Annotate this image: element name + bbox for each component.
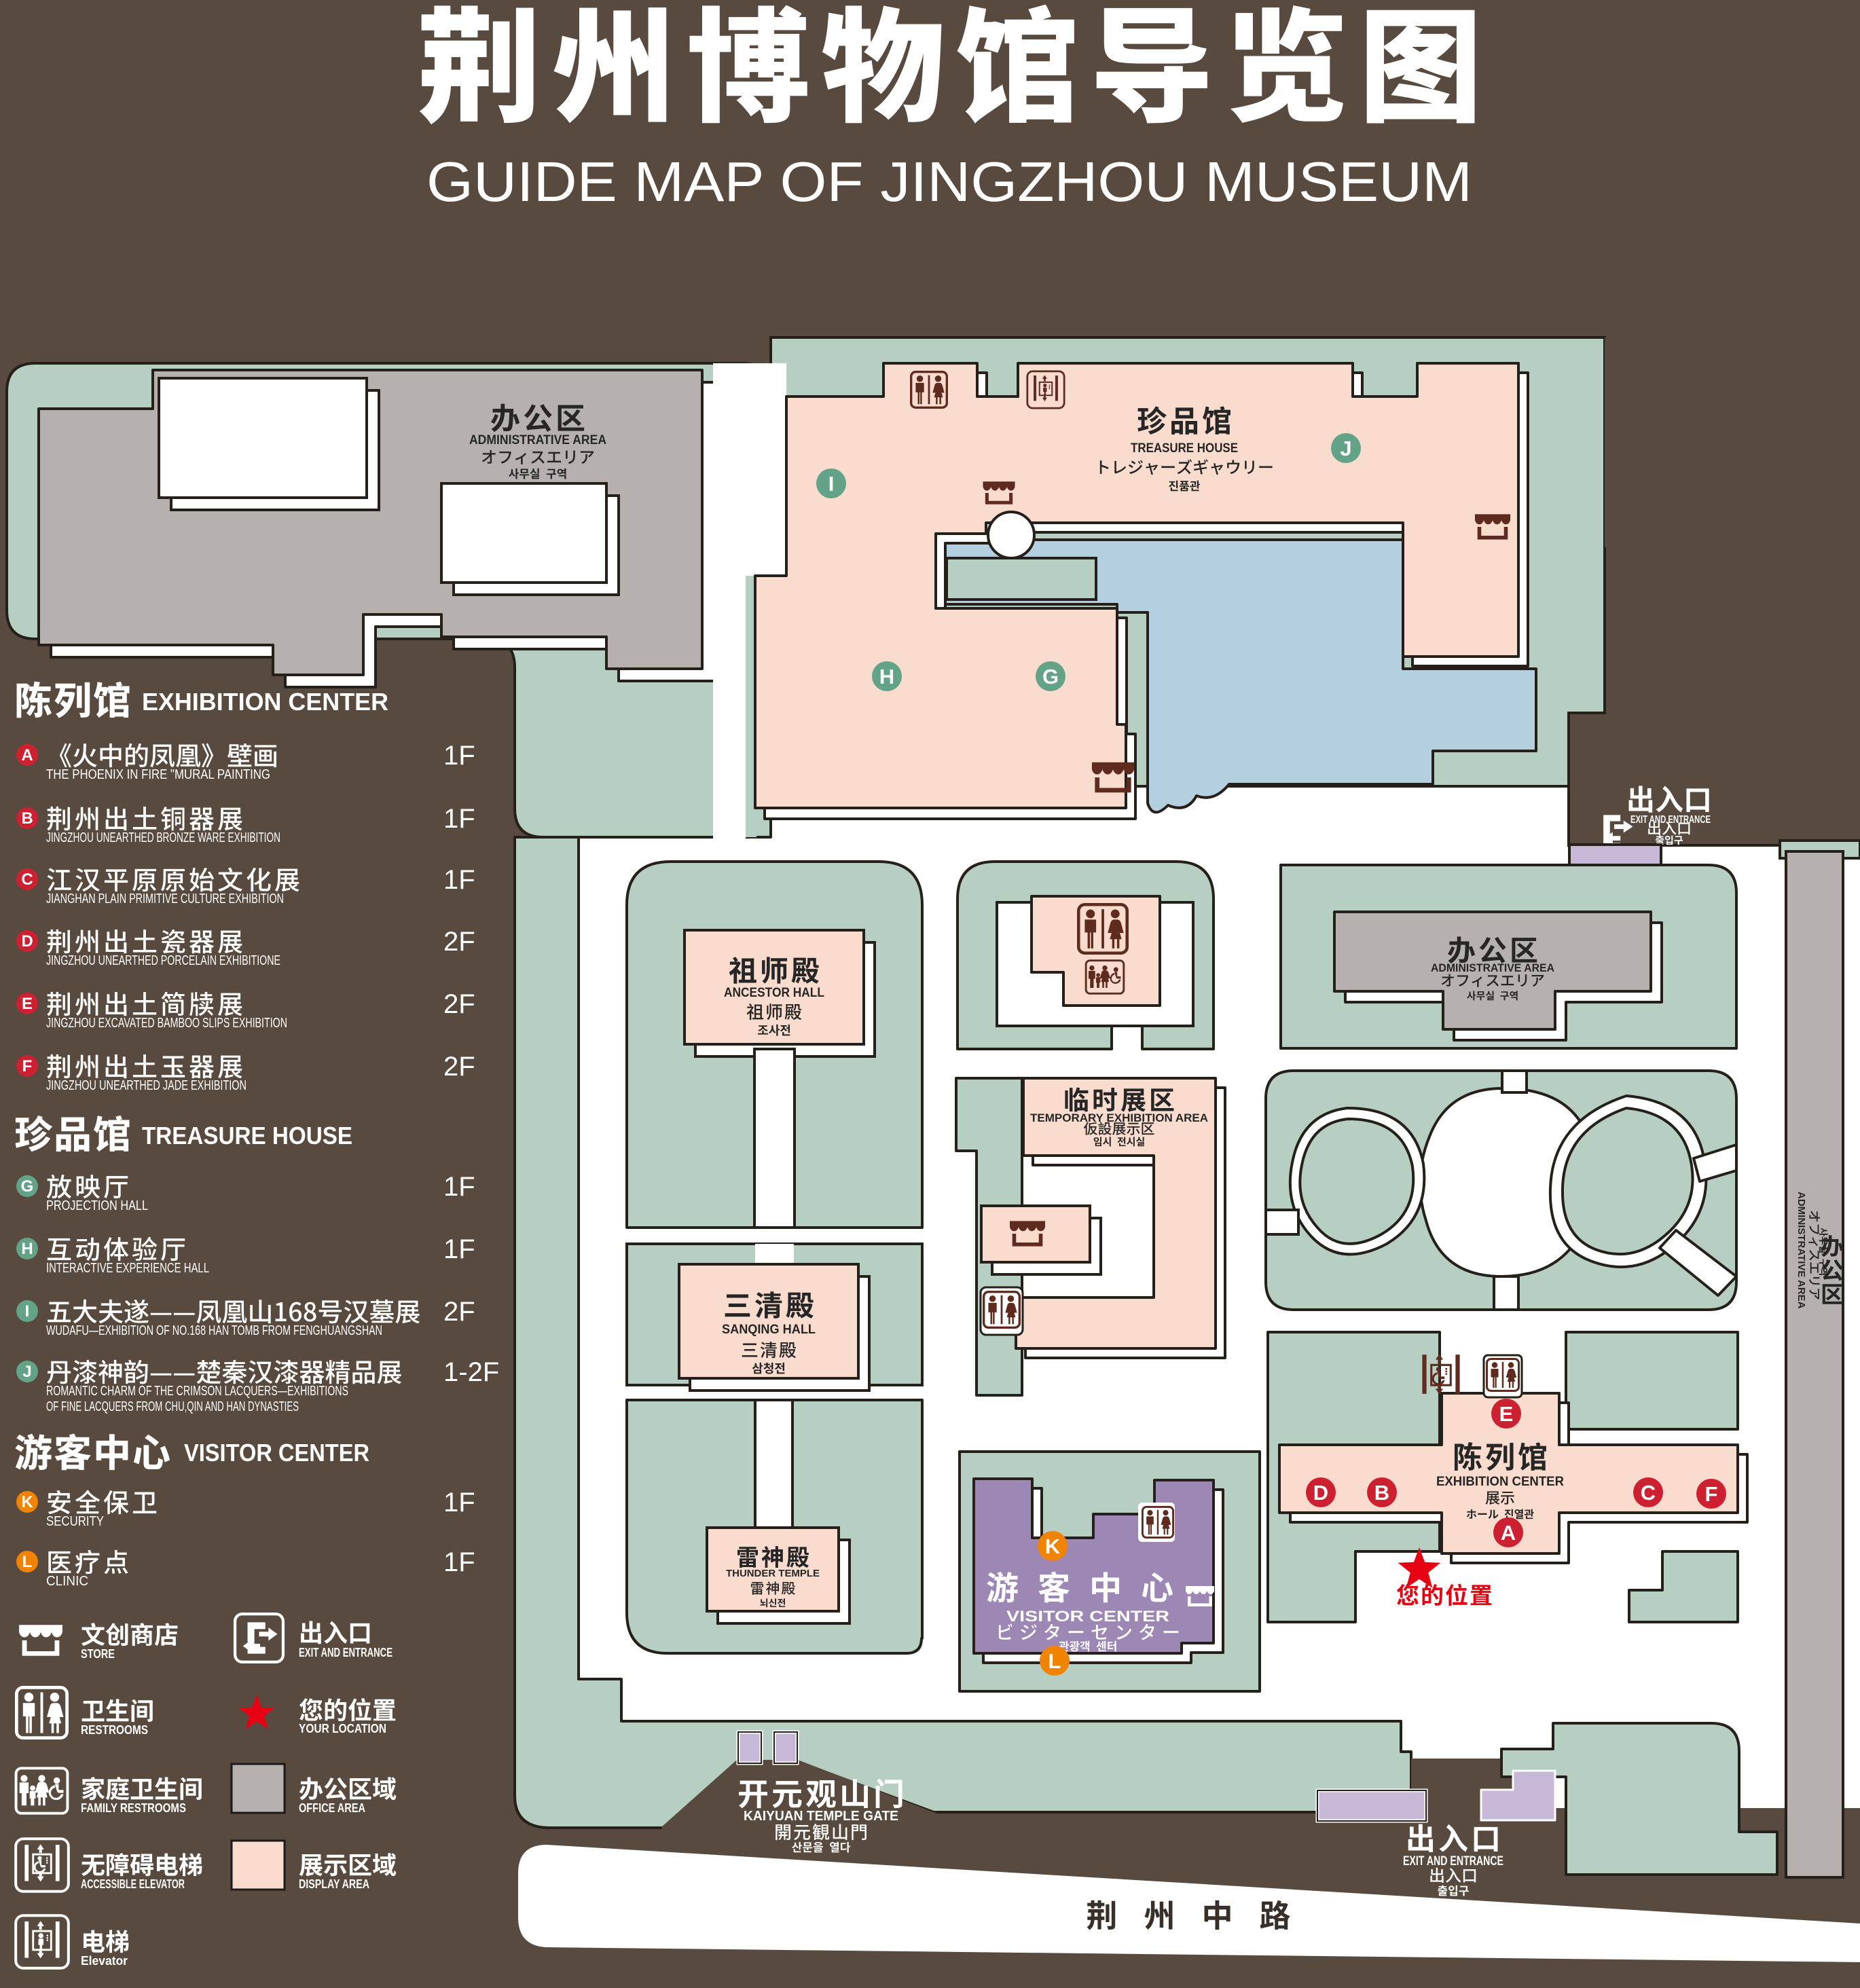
svg-text:A: A — [21, 746, 33, 765]
svg-text:C: C — [21, 870, 33, 889]
svg-text:ACCESSIBLE ELEVATOR: ACCESSIBLE ELEVATOR — [81, 1877, 185, 1891]
svg-text:ROMANTIC CHARM OF THE CRIMSON: ROMANTIC CHARM OF THE CRIMSON LACQUERS—E… — [46, 1384, 348, 1399]
svg-text:D: D — [1313, 1481, 1328, 1505]
svg-text:H: H — [879, 665, 894, 688]
svg-text:DISPLAY AREA: DISPLAY AREA — [299, 1877, 369, 1891]
svg-text:A: A — [1501, 1521, 1516, 1545]
svg-text:J: J — [1340, 437, 1351, 460]
svg-text:EXHIBITION CENTER: EXHIBITION CENTER — [1436, 1475, 1564, 1489]
svg-text:ADMINISTRATIVE AREA: ADMINISTRATIVE AREA — [469, 433, 606, 447]
svg-text:SANQING HALL: SANQING HALL — [722, 1323, 816, 1337]
svg-text:ADMINISTRATIVE AREA: ADMINISTRATIVE AREA — [1431, 961, 1554, 974]
svg-text:Elevator: Elevator — [81, 1954, 128, 1968]
svg-text:I: I — [828, 472, 835, 496]
svg-text:STORE: STORE — [81, 1647, 115, 1661]
svg-text:1F: 1F — [443, 1172, 475, 1202]
svg-text:RESTROOMS: RESTROOMS — [81, 1723, 148, 1737]
svg-text:YOUR LOCATION: YOUR LOCATION — [299, 1722, 386, 1735]
svg-text:FAMILY RESTROOMS: FAMILY RESTROOMS — [81, 1801, 186, 1815]
svg-text:EXIT AND ENTRANCE: EXIT AND ENTRANCE — [299, 1646, 393, 1659]
svg-text:B: B — [1374, 1481, 1389, 1505]
svg-text:C: C — [1641, 1481, 1656, 1505]
svg-text:F: F — [1705, 1482, 1718, 1506]
svg-text:WUDAFU—EXHIBITION OF NO.168 HA: WUDAFU—EXHIBITION OF NO.168 HAN TOMB FRO… — [46, 1323, 382, 1338]
svg-text:JINGZHOU EXCAVATED BAMBOO SLIP: JINGZHOU EXCAVATED BAMBOO SLIPS EXHIBITI… — [46, 1016, 287, 1031]
svg-text:VISITOR CENTER: VISITOR CENTER — [184, 1439, 369, 1467]
svg-text:1F: 1F — [443, 1547, 475, 1577]
svg-text:B: B — [21, 809, 33, 828]
svg-text:CLINIC: CLINIC — [46, 1574, 88, 1589]
svg-text:G: G — [21, 1177, 34, 1196]
svg-text:JINGZHOU UNEARTHED JADE EXHIBI: JINGZHOU UNEARTHED JADE EXHIBITION — [46, 1078, 247, 1093]
svg-text:INTERACTIVE EXPERIENCE HALL: INTERACTIVE EXPERIENCE HALL — [46, 1261, 209, 1276]
svg-text:1F: 1F — [443, 865, 475, 895]
svg-text:TEMPORARY EXHIBITION AREA: TEMPORARY EXHIBITION AREA — [1030, 1111, 1208, 1124]
svg-text:F: F — [22, 1057, 33, 1075]
svg-text:D: D — [21, 932, 33, 951]
svg-text:EXHIBITION CENTER: EXHIBITION CENTER — [142, 688, 388, 716]
svg-text:JINGZHOU UNEARTHED BRONZE WARE: JINGZHOU UNEARTHED BRONZE WARE EXHIBITIO… — [46, 830, 280, 845]
svg-text:H: H — [21, 1240, 33, 1258]
svg-text:1F: 1F — [443, 804, 475, 834]
svg-text:G: G — [1042, 665, 1059, 688]
svg-text:THUNDER TEMPLE: THUNDER TEMPLE — [726, 1568, 820, 1579]
svg-text:OFFICE AREA: OFFICE AREA — [299, 1801, 365, 1815]
svg-text:ADMINISTRATIVE AREA: ADMINISTRATIVE AREA — [1795, 1192, 1807, 1309]
svg-text:1F: 1F — [443, 1488, 475, 1517]
svg-text:JINGZHOU UNEARTHED PORCELAIN E: JINGZHOU UNEARTHED PORCELAIN EXHIBITIONE — [46, 953, 280, 968]
svg-text:ANCESTOR HALL: ANCESTOR HALL — [724, 986, 824, 1000]
svg-text:1F: 1F — [443, 1234, 475, 1264]
svg-text:E: E — [1499, 1402, 1514, 1426]
svg-text:I: I — [25, 1302, 30, 1321]
svg-text:L: L — [1048, 1649, 1061, 1673]
svg-text:2F: 2F — [443, 1297, 475, 1327]
svg-text:E: E — [22, 995, 33, 1013]
svg-text:TREASURE HOUSE: TREASURE HOUSE — [1131, 441, 1238, 456]
svg-text:J: J — [22, 1363, 31, 1381]
svg-text:EXIT AND ENTRANCE: EXIT AND ENTRANCE — [1630, 814, 1711, 826]
svg-text:THE PHOENIX IN FIRE "MURAL PAI: THE PHOENIX IN FIRE "MURAL PAINTING — [46, 767, 270, 782]
svg-text:1F: 1F — [443, 741, 475, 771]
svg-text:EXIT AND ENTRANCE: EXIT AND ENTRANCE — [1403, 1854, 1503, 1869]
svg-text:PROJECTION HALL: PROJECTION HALL — [46, 1198, 148, 1213]
svg-text:2F: 2F — [443, 989, 475, 1019]
svg-text:OF FINE LACQUERS FROM CHU,QIN: OF FINE LACQUERS FROM CHU,QIN AND HAN DY… — [46, 1399, 299, 1414]
svg-text:L: L — [22, 1553, 33, 1571]
svg-text:GUIDE MAP OF JINGZHOU MUSEUM: GUIDE MAP OF JINGZHOU MUSEUM — [426, 150, 1472, 213]
svg-text:TREASURE HOUSE: TREASURE HOUSE — [142, 1122, 352, 1149]
svg-text:2F: 2F — [443, 927, 475, 957]
svg-text:JIANGHAN PLAIN PRIMITIVE CULTU: JIANGHAN PLAIN PRIMITIVE CULTURE EXHIBIT… — [46, 891, 284, 906]
svg-text:SECURITY: SECURITY — [46, 1514, 104, 1529]
svg-text:1-2F: 1-2F — [443, 1357, 499, 1387]
svg-text:K: K — [21, 1493, 33, 1511]
svg-text:KAIYUAN TEMPLE GATE: KAIYUAN TEMPLE GATE — [744, 1809, 898, 1824]
svg-text:VISITOR CENTER: VISITOR CENTER — [1006, 1608, 1169, 1625]
svg-text:2F: 2F — [443, 1052, 475, 1082]
svg-text:K: K — [1045, 1534, 1061, 1558]
